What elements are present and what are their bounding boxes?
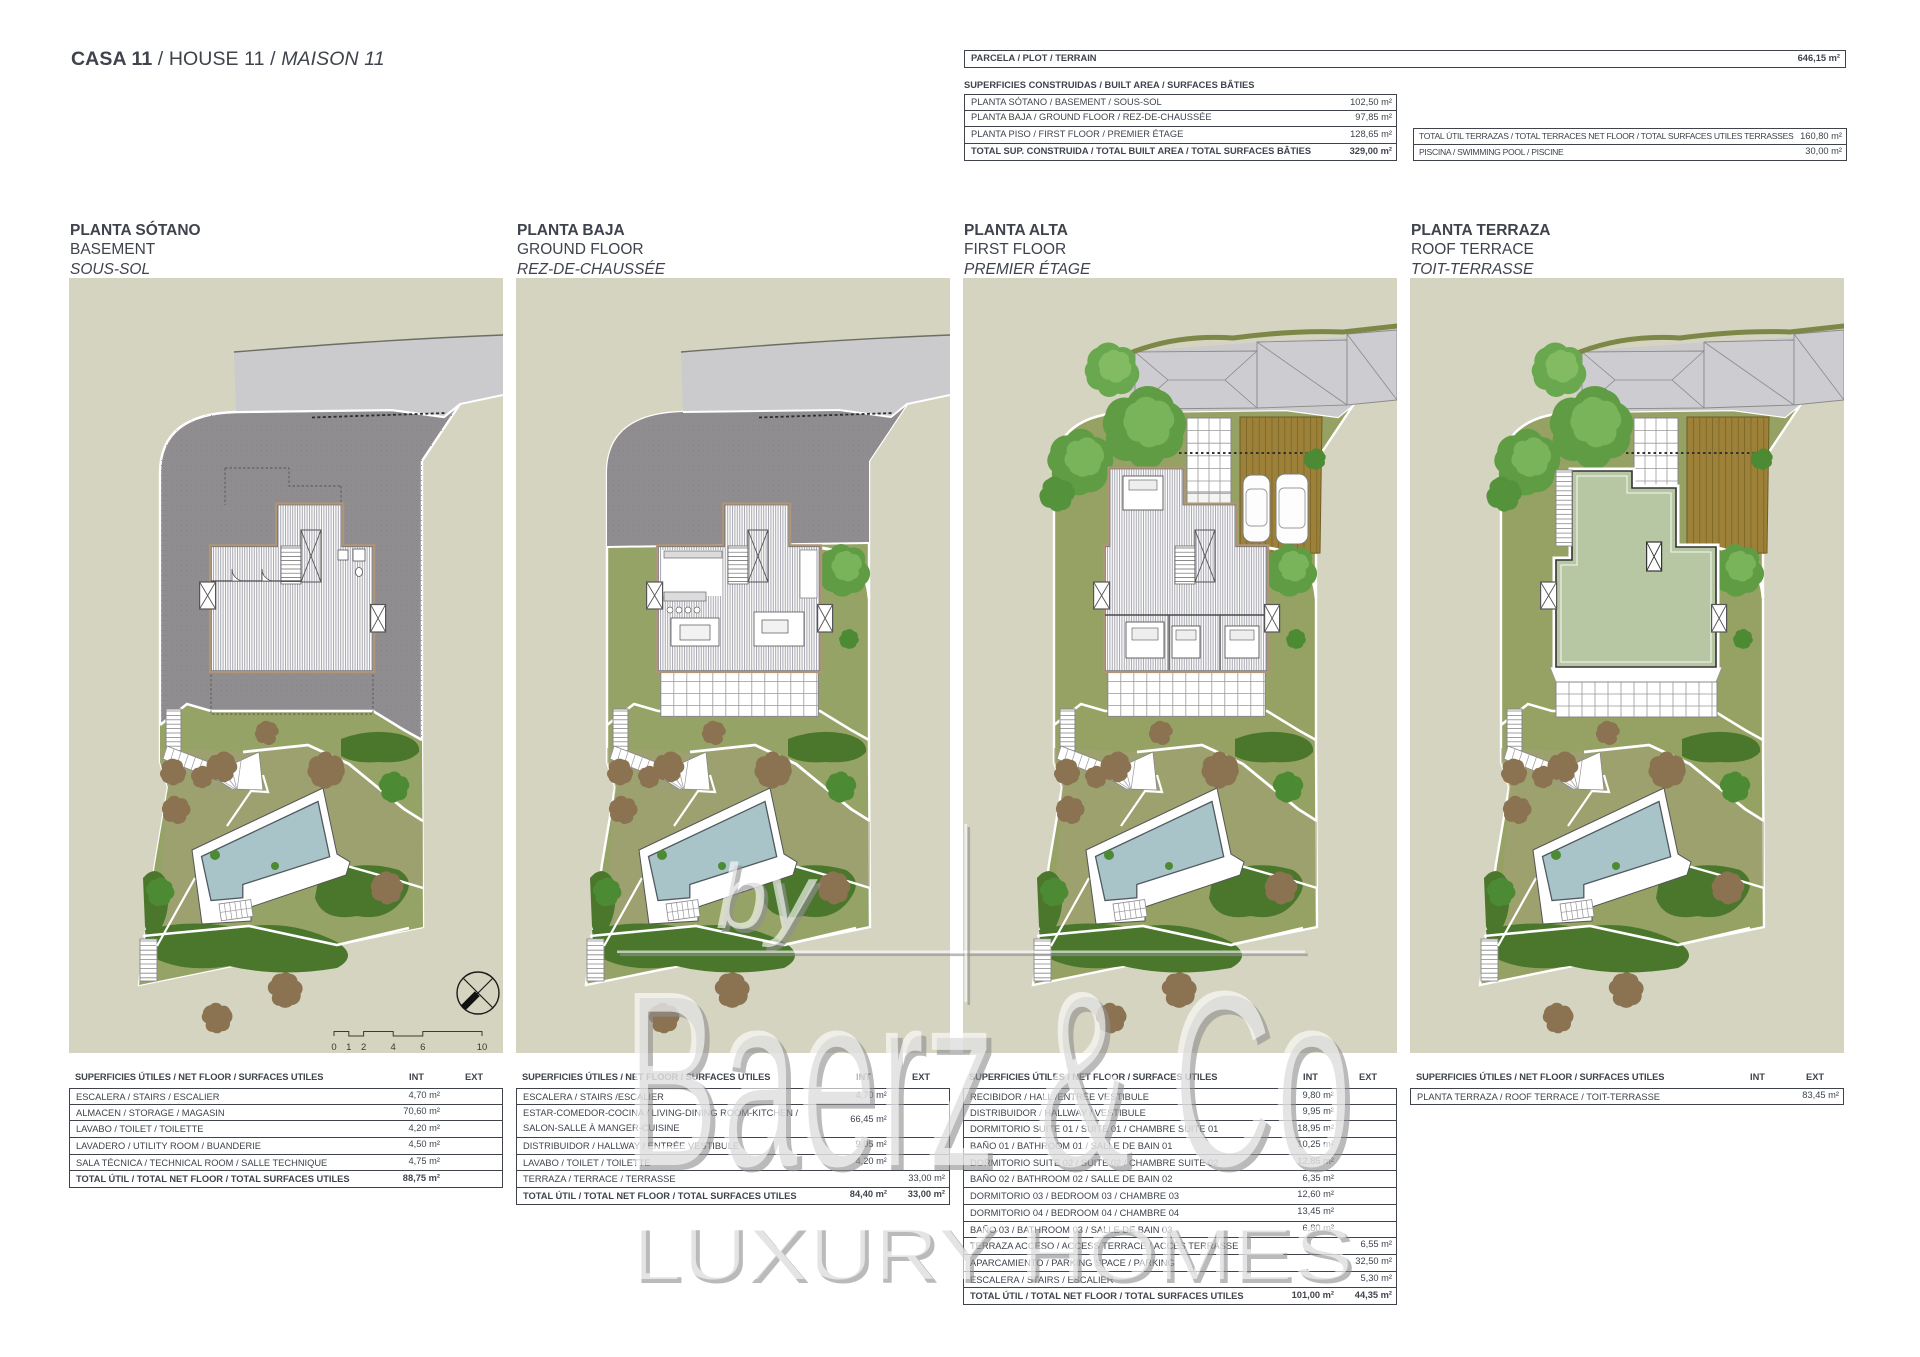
svg-text:1: 1 [346,1042,351,1053]
svg-text:10: 10 [477,1042,488,1053]
svg-text:0: 0 [331,1042,336,1053]
svg-text:4: 4 [391,1042,396,1053]
svg-text:6: 6 [420,1042,425,1053]
svg-text:2: 2 [361,1042,366,1053]
